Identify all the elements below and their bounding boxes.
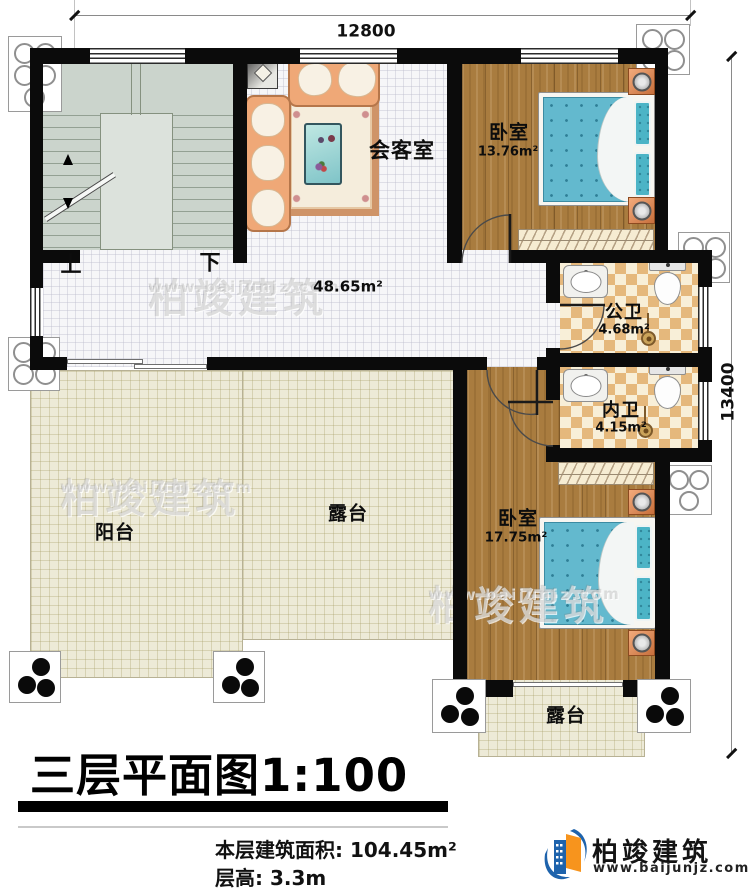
terrace-bottom-label: 露台 [546,707,586,726]
sink [563,369,608,402]
wall-segment [655,48,668,263]
hall-area-label: 48.65m² [313,280,383,295]
stair-up-label: 上 [61,255,82,276]
floor-height-text: 层高: 3.3m [215,862,326,891]
sofa-three-seat [245,95,291,232]
wardrobe [558,462,654,485]
nightstand [628,489,655,515]
bathroom-public-area: 4.68m² [598,324,649,337]
window [521,48,618,64]
bedroom-top-area: 13.76m² [478,146,538,159]
balcony-terrace-floor [30,370,243,678]
stair-down-label: 下 [200,253,221,274]
wall-segment [447,250,462,263]
page-title: 三层平面图1:100 [30,739,408,804]
planter-box [9,651,61,703]
wall-segment [453,357,467,697]
bed [539,517,656,629]
bed-pillow [635,576,652,621]
sliding-door [513,682,623,687]
wall-segment [546,448,712,462]
wardrobe [518,229,654,251]
window [698,382,712,440]
stair-direction-arrow [63,198,73,209]
brand-logo-icon [540,828,592,882]
sofa-cushion [251,103,285,137]
bed [538,92,655,206]
nightstand [628,68,655,95]
bedroom-top-label: 卧室 [489,124,529,143]
title-underline-thin [18,826,448,828]
top-dimension-label: 12800 [336,24,395,41]
floor-plan-canvas: 12800 13400 [0,0,750,891]
stair-void [100,113,173,250]
wall-segment [546,250,560,303]
wall-segment [546,367,560,400]
bathroom-private-label: 内卫 [602,402,640,420]
balcony-label: 阳台 [95,524,135,543]
stairwell-room [43,62,233,250]
wall-segment [207,357,487,370]
table-decor [314,161,328,174]
window [30,288,43,336]
window [90,48,185,64]
window [698,287,712,347]
dimension-guide [74,0,75,48]
bathroom-public-label: 公卫 [605,304,643,322]
planter-box [637,679,691,733]
stair-direction-arrow [63,154,73,165]
bedroom-bottom-area: 17.75m² [485,531,548,545]
terrace-left-label: 露台 [328,505,368,524]
wall-segment [233,48,247,263]
table-decor [318,137,324,143]
wall-segment [537,357,560,370]
reception-label: 会客室 [369,141,435,162]
title-underline [18,801,448,812]
wall-segment [510,250,712,263]
stair-divider [131,62,141,115]
sofa-cushion [251,189,285,227]
sliding-door [134,364,207,369]
wall-segment [30,48,43,288]
bed-pillow [635,525,652,570]
wall-segment [655,462,670,697]
sink [563,265,608,298]
bedroom-bottom-label: 卧室 [498,510,538,529]
planter-box [432,679,486,733]
bed-pillow [634,101,651,146]
table-decor [328,135,335,142]
planter-box [213,651,265,703]
wall-segment [447,48,462,263]
window [300,48,397,64]
wall-segment [546,353,712,367]
coffee-table [304,123,342,185]
sofa-cushion [336,59,378,99]
top-dimension-line [74,15,690,16]
sofa-cushion [251,145,285,181]
nightstand [628,197,655,224]
planter-box [665,465,712,515]
bed-pillow [634,152,651,197]
sliding-door [67,359,143,364]
brand-website: www.baijunjz.com [593,861,750,876]
floor-area-text: 本层建筑面积: 104.45m² [215,834,457,863]
bathroom-private-area: 4.15m² [595,422,646,435]
wall-segment [30,357,67,370]
right-dimension-label: 13400 [721,362,738,421]
nightstand [628,630,655,656]
sofa-cushion [296,61,334,98]
